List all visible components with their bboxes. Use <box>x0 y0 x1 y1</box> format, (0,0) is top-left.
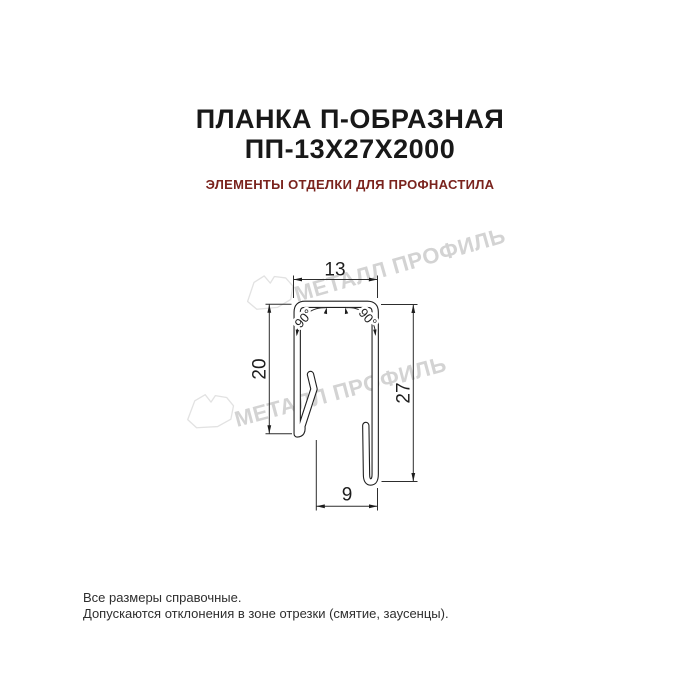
watermark-group-top: МЕТАЛЛ ПРОФИЛЬ <box>244 223 508 312</box>
dimension-right-height-value: 27 <box>394 382 415 403</box>
footer-note-line-2: Допускаются отклонения в зоне отрезки (с… <box>83 606 449 622</box>
dimension-top-width-value: 13 <box>324 260 345 281</box>
dimension-bottom-width-value: 9 <box>342 485 353 506</box>
dimension-left-height-value: 20 <box>250 358 271 379</box>
dimension-right-height: 27 <box>381 305 418 482</box>
metall-profil-logo-icon <box>185 392 235 430</box>
page: ПЛАНКА П-ОБРАЗНАЯ ПП-13Х27Х2000 ЭЛЕМЕНТЫ… <box>0 0 700 700</box>
metall-profil-logo-icon <box>244 272 295 311</box>
footer-notes: Все размеры справочные. Допускаются откл… <box>83 590 449 621</box>
footer-note-line-1: Все размеры справочные. <box>83 590 449 606</box>
